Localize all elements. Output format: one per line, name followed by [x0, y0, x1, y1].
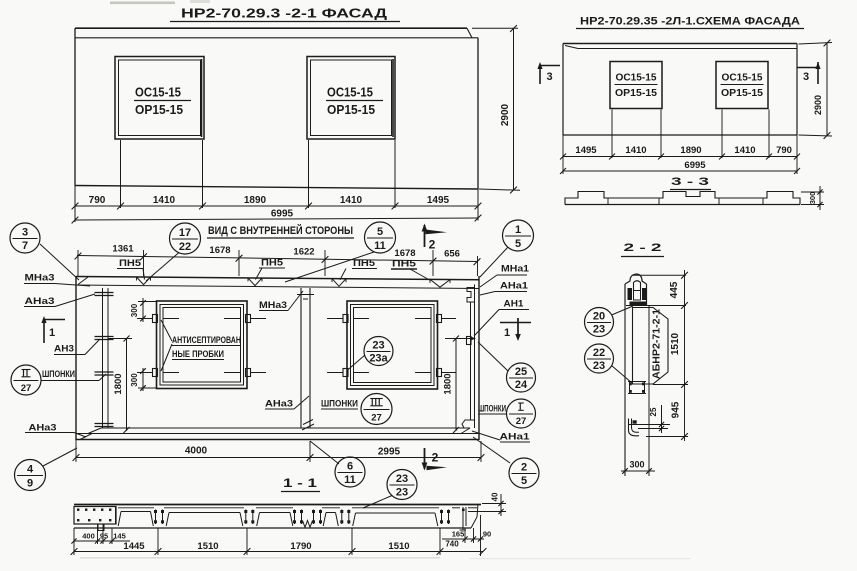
svg-text:1678: 1678	[394, 248, 415, 259]
svg-text:ОС15-15: ОС15-15	[616, 73, 657, 84]
svg-text:300: 300	[130, 303, 139, 317]
svg-text:АН3: АН3	[54, 344, 74, 355]
svg-text:740: 740	[445, 540, 459, 549]
svg-text:АБНР2-71-2-1: АБНР2-71-2-1	[652, 309, 663, 379]
svg-text:1: 1	[49, 327, 55, 339]
svg-text:ВИД С ВНУТРЕННЕЙ СТОРОНЫ: ВИД С ВНУТРЕННЕЙ СТОРОНЫ	[208, 224, 353, 237]
svg-text:656: 656	[444, 249, 460, 260]
svg-text:22: 22	[179, 241, 191, 253]
svg-text:5: 5	[515, 238, 521, 250]
svg-text:11: 11	[344, 474, 356, 486]
svg-text:3 - 3: 3 - 3	[671, 176, 709, 188]
svg-text:2: 2	[429, 238, 436, 252]
svg-text:23а: 23а	[369, 353, 388, 365]
svg-text:1890: 1890	[680, 145, 701, 156]
svg-text:2 - 2: 2 - 2	[624, 242, 662, 254]
svg-text:400: 400	[82, 532, 95, 541]
svg-text:3: 3	[22, 227, 28, 239]
svg-text:1800: 1800	[443, 373, 454, 394]
svg-text:ОС15-15: ОС15-15	[135, 86, 181, 100]
svg-text:2900: 2900	[500, 103, 511, 126]
svg-text:АНа1: АНа1	[500, 432, 531, 443]
svg-text:2: 2	[521, 462, 527, 474]
svg-text:1510: 1510	[388, 541, 409, 552]
svg-text:3: 3	[803, 71, 809, 83]
svg-text:145: 145	[113, 532, 126, 541]
svg-text:165: 165	[452, 530, 465, 539]
svg-text:23: 23	[593, 324, 605, 336]
svg-text:ПН5: ПН5	[261, 258, 283, 268]
svg-text:17: 17	[179, 227, 191, 239]
svg-text:22: 22	[593, 347, 605, 359]
svg-text:945: 945	[671, 401, 682, 418]
svg-text:АН1: АН1	[504, 299, 525, 310]
svg-text:6: 6	[347, 461, 353, 473]
svg-text:ОР15-15: ОР15-15	[327, 103, 375, 117]
svg-text:11: 11	[374, 240, 386, 252]
svg-text:1410: 1410	[734, 145, 755, 156]
svg-text:1410: 1410	[153, 195, 176, 206]
svg-text:6995: 6995	[684, 160, 706, 171]
svg-text:АНа3: АНа3	[265, 399, 293, 410]
svg-text:МНа1: МНа1	[501, 264, 530, 275]
svg-text:1410: 1410	[340, 195, 363, 206]
svg-text:1361: 1361	[112, 244, 134, 255]
svg-text:1445: 1445	[123, 541, 145, 552]
svg-text:24: 24	[515, 379, 528, 391]
svg-text:790: 790	[89, 195, 106, 206]
svg-text:1: 1	[515, 224, 521, 236]
svg-text:1890: 1890	[244, 195, 267, 206]
svg-text:1: 1	[504, 327, 510, 339]
svg-text:1678: 1678	[209, 245, 230, 256]
svg-text:ОР15-15: ОР15-15	[721, 88, 763, 99]
svg-text:2900: 2900	[813, 95, 823, 115]
svg-text:1495: 1495	[427, 195, 450, 206]
svg-text:1 - 1: 1 - 1	[283, 478, 318, 490]
svg-text:23: 23	[396, 473, 408, 485]
svg-text:20: 20	[593, 311, 605, 323]
svg-text:АНа3: АНа3	[29, 423, 57, 434]
svg-text:445: 445	[669, 281, 680, 298]
svg-text:4: 4	[27, 464, 34, 476]
svg-text:АНа3: АНа3	[25, 296, 55, 307]
svg-text:1495: 1495	[575, 145, 597, 156]
svg-text:1510: 1510	[197, 541, 218, 552]
svg-text:40: 40	[491, 492, 500, 501]
svg-text:1410: 1410	[625, 145, 646, 156]
svg-text:27: 27	[371, 413, 382, 424]
svg-text:25: 25	[515, 366, 527, 378]
svg-text:300: 300	[629, 460, 644, 470]
svg-text:95: 95	[100, 532, 108, 541]
svg-text:АНа1: АНа1	[500, 281, 529, 292]
svg-text:1790: 1790	[290, 541, 311, 552]
svg-text:ОС15-15: ОС15-15	[327, 86, 373, 100]
svg-text:90: 90	[483, 530, 491, 539]
svg-text:ОР15-15: ОР15-15	[615, 88, 657, 99]
svg-text:5: 5	[377, 226, 383, 238]
svg-text:ПН5: ПН5	[392, 259, 416, 269]
svg-text:НР2-70.29.3 -2-1 ФАСАД: НР2-70.29.3 -2-1 ФАСАД	[181, 7, 387, 21]
svg-text:790: 790	[776, 145, 792, 156]
svg-text:МНа3: МНа3	[25, 273, 55, 284]
svg-text:300: 300	[808, 192, 817, 205]
svg-text:3: 3	[546, 71, 552, 83]
svg-text:9: 9	[27, 478, 33, 490]
svg-text:23: 23	[372, 340, 384, 352]
svg-text:1510: 1510	[670, 332, 681, 355]
svg-text:25: 25	[649, 407, 658, 416]
svg-text:ШПОНКИ: ШПОНКИ	[321, 399, 358, 410]
svg-text:НР2-70.29.35 -2Л-1.СХЕМА ФАСАД: НР2-70.29.35 -2Л-1.СХЕМА ФАСАДА	[580, 16, 800, 28]
svg-text:ШПОНКИ: ШПОНКИ	[478, 404, 506, 414]
svg-text:27: 27	[516, 416, 527, 427]
svg-text:ПН5: ПН5	[119, 258, 141, 268]
svg-text:ОС15-15: ОС15-15	[722, 73, 763, 84]
svg-text:4000: 4000	[185, 446, 208, 457]
svg-text:1622: 1622	[293, 247, 314, 258]
svg-text:2995: 2995	[378, 447, 401, 458]
svg-text:5: 5	[521, 475, 527, 487]
svg-text:НЫЕ ПРОБКИ: НЫЕ ПРОБКИ	[172, 349, 224, 359]
svg-text:23: 23	[396, 487, 408, 499]
svg-text:1800: 1800	[113, 373, 124, 394]
svg-text:АНТИСЕПТИРОВАН: АНТИСЕПТИРОВАН	[172, 335, 241, 345]
svg-text:7: 7	[22, 240, 28, 252]
svg-text:ПН5: ПН5	[353, 258, 375, 268]
svg-text:МНа3: МНа3	[259, 300, 287, 311]
svg-text:6995: 6995	[271, 209, 294, 220]
svg-text:23: 23	[593, 360, 605, 372]
svg-text:ШПОНКИ: ШПОНКИ	[42, 369, 75, 380]
svg-text:300: 300	[130, 373, 139, 387]
svg-text:ОР15-15: ОР15-15	[135, 103, 183, 117]
svg-text:27: 27	[21, 383, 32, 394]
